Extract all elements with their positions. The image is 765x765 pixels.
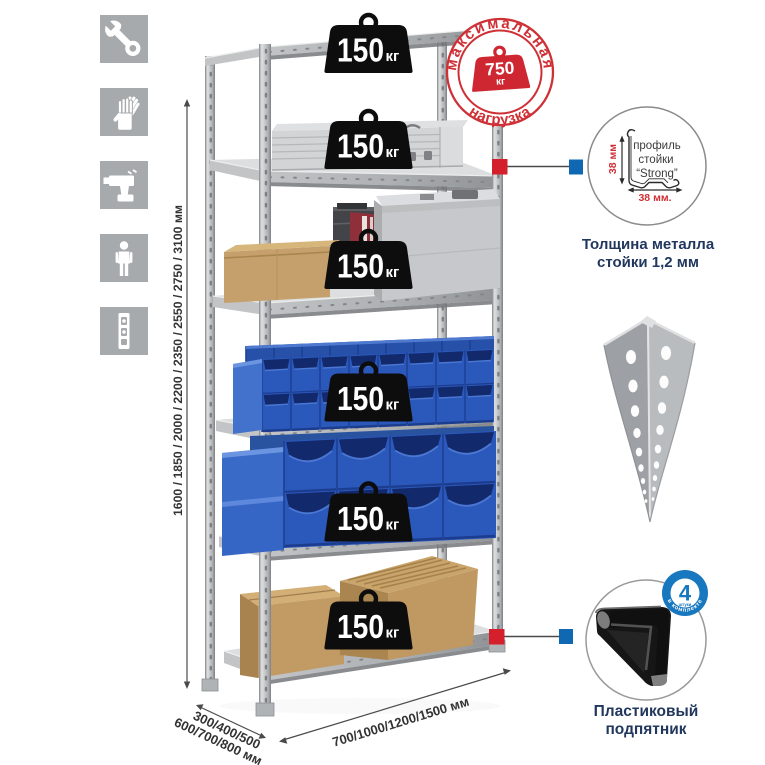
svg-text:штуки: штуки	[679, 602, 692, 607]
svg-text:стойки: стойки	[638, 154, 673, 166]
svg-text:Пластиковый: Пластиковый	[594, 703, 699, 720]
svg-text:1600 / 1850 / 2000 / 2200 / 23: 1600 / 1850 / 2000 / 2200 / 2350 / 2550 …	[173, 205, 185, 516]
svg-text:подпятник: подпятник	[605, 721, 686, 738]
svg-text:Толщина металла: Толщина металла	[582, 236, 715, 253]
svg-text:кг: кг	[496, 76, 506, 88]
svg-text:стойки 1,2 мм: стойки 1,2 мм	[597, 254, 699, 271]
svg-text:38 мм.: 38 мм.	[638, 192, 671, 204]
svg-text:“Strong”: “Strong”	[636, 168, 678, 180]
svg-text:38 мм: 38 мм	[607, 144, 619, 174]
svg-text:профиль: профиль	[633, 140, 681, 152]
